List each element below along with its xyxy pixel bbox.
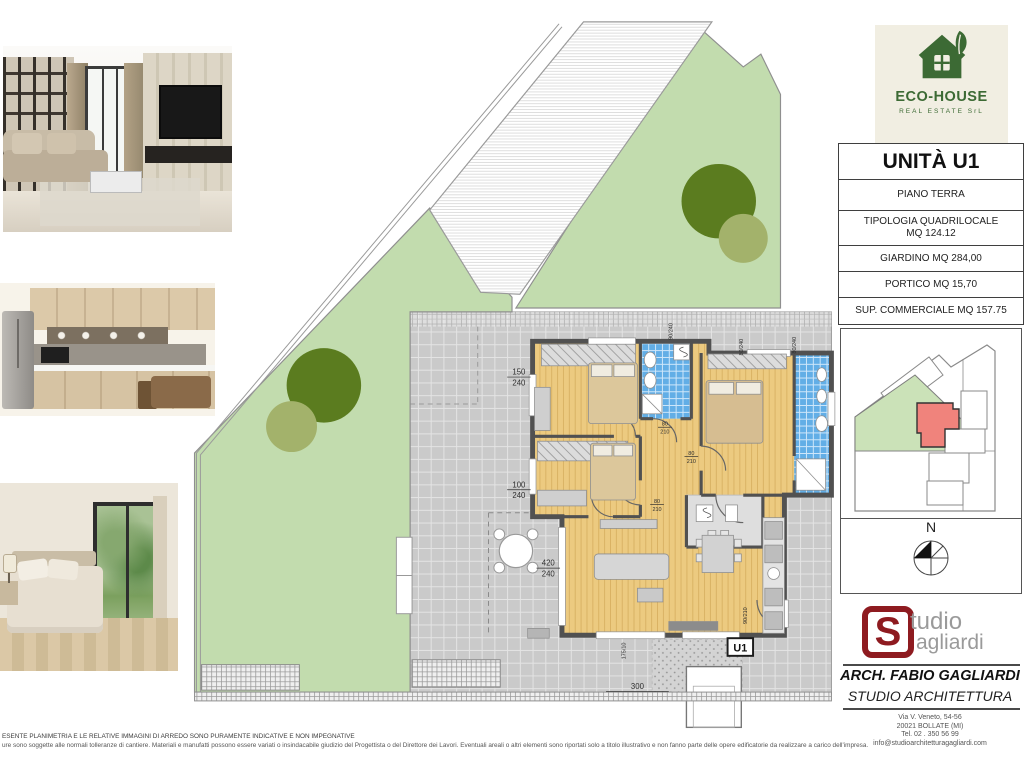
window-dimension: 90/240 [669,323,675,340]
divider [843,708,1020,710]
svg-text:150: 150 [512,368,526,377]
table-row: SUP. COMMERCIALE MQ 157.75 [839,298,1023,324]
svg-text:100: 100 [512,480,526,489]
eco-house-icon [911,25,973,87]
entry-dimension: 90/210 [743,607,749,624]
south-boundary [195,692,832,701]
bedroom-nightstand [0,581,18,605]
sideboard [600,520,657,529]
window-dimension: 80/240 [739,339,745,356]
bedroom-pillow [47,559,79,581]
desk [535,387,551,430]
bed-master [706,380,763,443]
address-line: Via V. Veneto, 54-56 [838,714,1022,723]
sofa [594,554,668,579]
svg-text:300: 300 [631,682,645,691]
disclaimer-line-2: ure sono soggette alle normali tolleranz… [2,742,952,749]
garden-planter [201,665,299,690]
floor-plan: U1 150 240 100 240 420 240 300 80 210 8 [185,15,840,745]
address-line: 20021 BOLLATE (MI) [838,723,1022,732]
compass-icon [906,534,956,582]
studio-gagliardi-logo: S tudio agliardi [862,602,1018,662]
architect-name: ARCH. FABIO GAGLIARDI [838,668,1022,684]
desk [537,490,586,506]
svg-text:240: 240 [512,378,526,387]
bed [590,443,635,500]
unit-title: UNITÀ U1 [839,144,1023,180]
outdoor-table [494,529,538,573]
svg-text:210: 210 [660,429,669,435]
eco-house-title: ECO-HOUSE [895,89,987,105]
wardrobe [708,354,786,369]
divider [843,664,1020,666]
unit-label: U1 [728,638,753,656]
svg-text:240: 240 [542,569,556,578]
table-row: PIANO TERRA [839,180,1023,211]
compass: N [840,518,1022,594]
planimetry-sheet: U1 150 240 100 240 420 240 300 80 210 8 [0,0,1024,768]
unit-label-text: U1 [733,642,747,654]
tv-unit [669,622,718,631]
bed [588,363,637,424]
studio-word2: agliardi [916,633,984,653]
living-cushion [47,133,77,153]
window-dimension: 80/240 [792,337,798,354]
bedroom-lamp [8,571,10,582]
studio-initial: S [862,606,914,658]
kitchen-open-shelf [47,327,167,344]
patio-planter [412,660,500,687]
site-minimap [840,328,1022,520]
svg-text:210: 210 [687,459,696,465]
side-dimension: 175/10 [622,643,628,660]
north-label: N [926,521,936,534]
photo-kitchen [0,283,215,416]
eco-house-logo: ECO-HOUSE REAL ESTATE SrL [875,25,1008,143]
svg-text:420: 420 [542,559,556,568]
svg-text:80: 80 [688,451,694,457]
bedroom-curtain [153,496,167,622]
kitchen-fridge [2,311,34,409]
disclaimer-line-1: ESENTE PLANIMETRIA E LE RELATIVE IMMAGIN… [2,733,952,740]
coffee-table [637,588,662,602]
kitchen-counter [763,518,785,634]
bedroom-lamp-shade [3,554,17,573]
svg-text:210: 210 [652,507,661,513]
table-row: GIARDINO MQ 284,00 [839,246,1023,272]
unit-info-table: UNITÀ U1 PIANO TERRA TIPOLOGIA QUADRILOC… [838,143,1024,325]
svg-text:80: 80 [654,499,660,505]
studio-word1: tudio [910,611,984,633]
photo-bedroom [0,483,178,671]
svg-text:240: 240 [512,491,526,500]
outdoor-sink [528,628,550,638]
living-cushion [12,133,42,153]
living-coffee-table [90,171,142,193]
eco-house-subtitle: REAL ESTATE SrL [899,108,984,115]
svg-text:80: 80 [662,422,668,428]
table-row: PORTICO MQ 15,70 [839,272,1023,298]
site-minimap-drawing [841,329,1019,517]
table-row: TIPOLOGIA QUADRILOCALE MQ 124.12 [839,211,1023,246]
architect-studio: STUDIO ARCHITETTURA [838,688,1022,704]
kitchen-microwave [41,347,69,363]
